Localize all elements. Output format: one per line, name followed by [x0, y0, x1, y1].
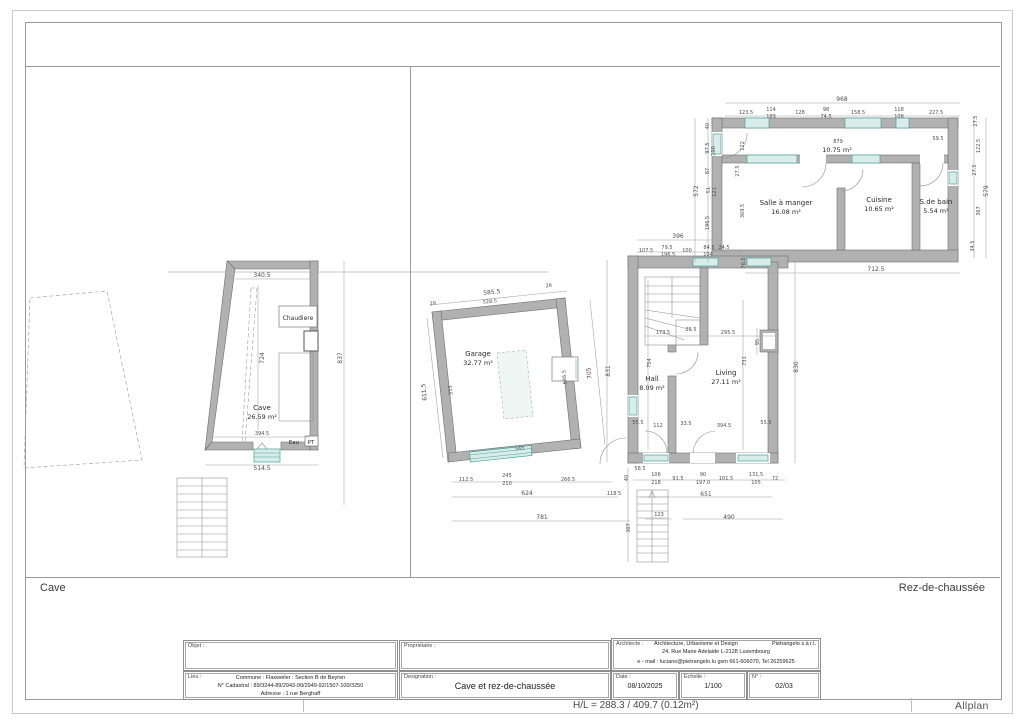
room-name: Living	[716, 369, 737, 377]
storage-outline	[279, 353, 313, 421]
floor-plan-drawing: ChaudiereEauPT340.5724394.5514.583796812…	[0, 0, 1024, 724]
dim-label: 114	[766, 107, 776, 113]
kitchen-door-arc	[841, 169, 863, 191]
room-name: S.de bain	[920, 198, 953, 206]
terrace-door-arc	[693, 431, 715, 453]
titleblock-designation: Designation : Cave et rez-de-chaussée	[399, 671, 611, 700]
allplan-brand: Allplan	[955, 700, 989, 712]
lieu-commune: Commune : Flaxweiler : Section B de Beyr…	[184, 675, 397, 681]
architecte-firm-suffix: Pietrangelo s.à r.l.	[772, 641, 816, 647]
dim-label: 59.5	[932, 136, 943, 142]
dim-label: 190	[711, 146, 717, 156]
dim-label: 123	[654, 512, 664, 518]
room-name: Hall	[645, 375, 658, 383]
dim-label: 754	[647, 358, 653, 368]
dining-door-arc	[802, 163, 826, 187]
cave-wall-right	[310, 261, 318, 450]
dim-label: 101.5	[719, 476, 733, 482]
dim-label: 218	[651, 480, 661, 486]
dim-label: 396	[672, 233, 684, 240]
dim-label: 123.5	[739, 110, 753, 116]
room-area: 10.65 m²	[864, 205, 894, 213]
room-area: 10.75 m²	[822, 146, 852, 154]
titleblock-echelle: Echelle : 1/100	[679, 671, 747, 700]
dim-label: 100	[682, 248, 692, 254]
dim-label: 837	[337, 352, 344, 364]
dim-label: 40	[705, 123, 711, 129]
dim-label: 307	[626, 523, 632, 533]
room-name: Cave	[253, 404, 271, 412]
cave-entry-steps	[254, 449, 280, 462]
dim-label: 394.5	[255, 431, 269, 437]
hall-door-arc	[645, 431, 667, 453]
room-name: Garage	[465, 350, 491, 358]
dim-label: 76.5	[741, 257, 747, 268]
dim-label: 624	[521, 490, 533, 497]
plan-label: Eau	[289, 440, 299, 446]
date-value: 08/10/2025	[612, 683, 678, 690]
dim-label: 107.5	[639, 248, 653, 254]
dim-label: 724	[259, 352, 266, 364]
dim-label: 122	[740, 141, 746, 151]
dim-label: 74.5	[820, 114, 831, 120]
dim-label: 27.5	[973, 115, 979, 126]
numero-label: N° :	[752, 674, 761, 680]
dim-label: 210	[502, 481, 512, 487]
numero-value: 02/03	[748, 683, 820, 690]
dim-label: 611.5	[420, 383, 429, 401]
plan-label: Chaudiere	[283, 315, 314, 322]
dim-label: 24.5	[718, 245, 729, 251]
objet-label: Objet :	[188, 643, 204, 649]
dim-label: 158.5	[851, 110, 865, 116]
garage-island	[497, 350, 533, 419]
room-name: Cuisine	[866, 196, 892, 204]
dim-label: 295.5	[721, 330, 735, 336]
dim-label: 781	[536, 514, 548, 521]
dim-label: 27.5	[972, 164, 978, 175]
titleblock-date: Date : 08/10/2025	[611, 671, 679, 700]
dim-label: 72	[772, 476, 778, 482]
dim-label: 227.5	[929, 110, 943, 116]
dim-label: 731	[742, 356, 748, 366]
interior-stair	[645, 277, 700, 345]
proprietaire-label: Proprietaire :	[404, 643, 436, 649]
room-area: 8.09 m²	[639, 384, 665, 392]
dim-label: 712.5	[867, 266, 884, 273]
lieu-adresse: Adresse : 1 rue Berghaff	[184, 691, 397, 697]
dim-label: 266.5	[561, 477, 575, 483]
dim-label: 572	[693, 185, 700, 197]
room-name: Salle à manger	[760, 199, 813, 207]
dim-label: 514.5	[253, 465, 270, 472]
dim-label: 104	[703, 252, 713, 258]
dim-label: 189	[766, 114, 776, 120]
dim-label: 705	[585, 367, 593, 379]
dim-label: 245	[502, 473, 512, 479]
dim-label: 40	[624, 475, 630, 481]
architecte-firm: Architecture, Urbanisme et Design	[654, 641, 738, 647]
titleblock-objet: Objet :	[183, 640, 398, 671]
dim-label: 84.5	[703, 245, 714, 251]
gate-swing-arc	[600, 438, 626, 464]
dim-label: 121	[712, 187, 718, 197]
architecte-contact: e - mail : luciano@pietrangelo.lu gsm 66…	[612, 659, 820, 665]
garage	[427, 291, 630, 521]
dim-label: 968	[836, 96, 848, 103]
dim-label: 128	[795, 110, 805, 116]
dim-label: 27.5	[735, 165, 741, 176]
room-area: 27.11 m²	[711, 378, 741, 386]
dim-label: 196.5	[705, 216, 711, 230]
dim-label: 555	[448, 385, 455, 395]
wall-niche	[304, 331, 318, 351]
dim-label: 91.5	[672, 476, 683, 482]
dim-label: 651	[700, 491, 712, 498]
house-lower-block	[628, 256, 788, 562]
cave-exterior-stair	[177, 478, 227, 557]
dim-label: 55.5	[632, 420, 643, 426]
dim-label: 79.5	[661, 245, 672, 251]
room-area: 32.77 m²	[463, 359, 493, 367]
terrain-boundary	[24, 291, 142, 468]
designation-value: Cave et rez-de-chaussée	[400, 681, 610, 691]
allplan-print-preview: Cave Rez-de-chaussée	[0, 0, 1024, 724]
dim-label: 394.5	[717, 423, 731, 429]
room-area: 16.08 m²	[771, 208, 801, 216]
dim-label: 173.5	[656, 330, 670, 336]
room-area: 5.54 m²	[923, 207, 949, 215]
echelle-value: 1/100	[680, 683, 746, 690]
room-area: 26.59 m²	[247, 413, 277, 421]
dim-label: 118	[894, 107, 904, 113]
cave-wall-top	[227, 261, 318, 269]
dim-label: 90	[700, 472, 706, 478]
dim-label: 33.5	[680, 421, 691, 427]
lieu-cadastral: N° Cadastral : 89/3244-89/2943-90/2949-9…	[184, 683, 397, 689]
dim-label: 367	[976, 206, 982, 216]
dim-label: 95	[755, 339, 761, 345]
plan-label: PT	[308, 440, 315, 446]
dim-label: 196.5	[661, 252, 675, 258]
cave-plan	[24, 261, 548, 557]
dim-label: 830	[793, 361, 800, 373]
echelle-label: Echelle :	[684, 674, 705, 680]
dim-label: 528.5	[482, 298, 497, 305]
dim-label: 108	[894, 114, 904, 120]
dim-label: 490	[723, 514, 735, 521]
door-threshold-mark	[257, 443, 267, 449]
dim-label: 29	[429, 301, 436, 308]
dim-label: 131.5	[749, 472, 763, 478]
architecte-label: Architecte :	[616, 641, 644, 647]
cave-wall-left	[205, 261, 235, 450]
dim-label: 58.5	[634, 466, 645, 472]
dim-label: 87	[705, 168, 711, 174]
dim-label: 579	[983, 185, 990, 197]
dim-label: 369.5	[740, 204, 746, 218]
dim-label: 879	[833, 139, 843, 145]
titleblock-architecte: Architecte : Architecture, Urbanisme et …	[611, 638, 821, 671]
date-label: Date :	[616, 674, 631, 680]
dim-label: 34.5	[970, 240, 976, 251]
living-door-arc	[676, 352, 698, 374]
titleblock-proprietaire: Proprietaire :	[399, 640, 611, 671]
dim-label: 26	[545, 283, 552, 290]
titleblock-lieu: Lieu : Commune : Flaxweiler : Section B …	[183, 671, 398, 700]
dim-label: 122.5	[976, 139, 982, 153]
titleblock-numero: N° : 02/03	[747, 671, 821, 700]
dim-label: 197.0	[696, 480, 710, 486]
bath-door-arc	[920, 163, 943, 186]
cave-wall-bottom-left	[205, 442, 253, 450]
dim-label: 118.5	[607, 491, 621, 497]
architecte-address: 24, Rue Marie Adelaide L-2128 Luxembourg	[612, 649, 820, 655]
dim-label: 98	[823, 107, 829, 113]
dim-label: 105	[751, 480, 761, 486]
room-labels: Cave26.59 m²Garage32.77 m²10.75 m²Salle …	[247, 146, 952, 421]
dim-label: 106	[651, 472, 661, 478]
designation-label: Designation :	[404, 674, 436, 680]
dim-label: 565	[515, 446, 525, 453]
dim-label: 112	[653, 423, 663, 429]
dim-label: 831	[605, 365, 612, 377]
rdc-exterior-stair	[637, 490, 668, 562]
dim-label: 25.5	[685, 327, 696, 333]
dim-label: 112.5	[459, 477, 473, 483]
dim-label: 55.5	[760, 420, 771, 426]
size-indicator: H/L = 288.3 / 409.7 (0.12m²)	[573, 700, 699, 711]
dim-label: 585.5	[483, 288, 501, 297]
dim-label: 340.5	[253, 272, 270, 279]
